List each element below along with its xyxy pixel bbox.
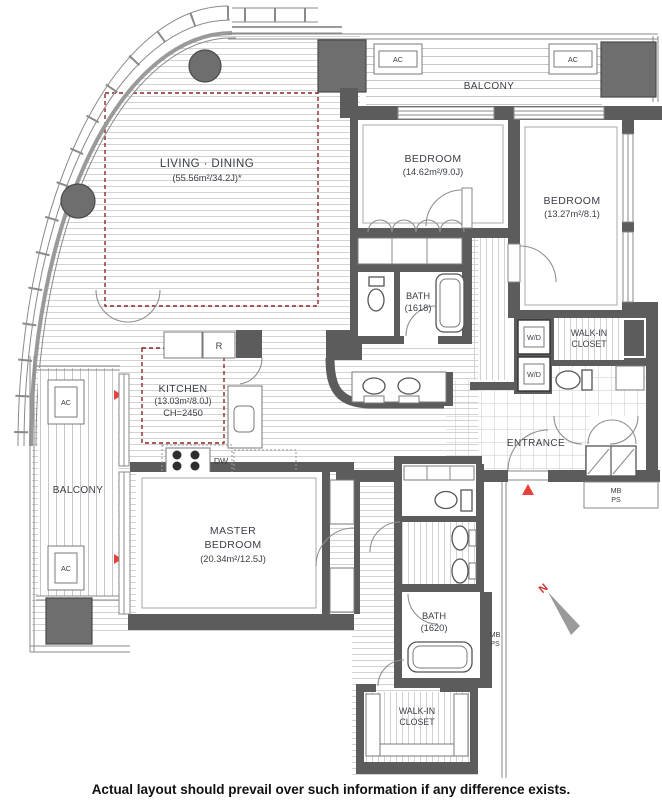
bedroom-a-closet [358, 238, 462, 264]
round-column-left [61, 184, 95, 218]
kitchen-label: KITCHEN [159, 383, 208, 395]
stove [166, 448, 210, 474]
ps-label-b: PS [490, 639, 500, 648]
mb-label-a: MB [611, 486, 622, 495]
walk-in-closet-b-line1: WALK-IN [399, 706, 435, 716]
living-dining-area: (55.56m²/34.2J)* [172, 173, 242, 183]
kitchen-ceiling-height: CH=2450 [163, 408, 203, 418]
walk-in-closet-a-line1: WALK-IN [571, 328, 607, 338]
linen-cabinet [404, 466, 474, 480]
bath-b-label: BATH [422, 611, 446, 621]
bedroom-a-label: BEDROOM [404, 153, 461, 165]
kitchen-cabinet [164, 332, 202, 358]
washer-dryer-label-bottom: W/D [527, 370, 541, 379]
kitchen-area: (13.03m²/8.0J) [154, 396, 211, 406]
caption: Actual layout should prevail over such i… [92, 782, 571, 797]
refrigerator-label: R [216, 341, 223, 351]
hall-floor-bedrooms [472, 232, 508, 380]
toilet-c-tank [461, 490, 472, 511]
walk-in-closet-a-line2: CLOSET [571, 339, 607, 349]
vanity-main [352, 372, 446, 403]
floorplan-page: N LIVING · DINING (55.56m²/34.2J)* BEDRO… [0, 0, 662, 812]
balcony-left-label: BALCONY [53, 485, 104, 496]
floorplan-svg: N LIVING · DINING (55.56m²/34.2J)* BEDRO… [0, 0, 662, 812]
ac-label-top-right: AC [568, 55, 578, 64]
master-closet-bottom [330, 568, 354, 612]
vanity-sink-left [363, 378, 385, 394]
master-closet-top [330, 480, 354, 524]
bath-a-label: BATH [406, 291, 430, 301]
balcony-top-label: BALCONY [464, 81, 515, 92]
entry-marker [522, 484, 534, 495]
master-bedroom-label-2: BEDROOM [204, 539, 261, 551]
column-balcony-left [318, 40, 366, 92]
ac-label-top-left: AC [393, 55, 403, 64]
toilet-a-tank [369, 277, 384, 286]
toilet-b [556, 371, 580, 389]
bedroom-b-area: (13.27m²/8.1) [544, 209, 600, 219]
master-bedroom-label-1: MASTER [210, 525, 256, 537]
bath-b-size: (1620) [421, 623, 448, 633]
ps-label-a: PS [611, 495, 621, 504]
master-bedroom-area: (20.34m²/12.5J) [200, 554, 266, 564]
vanity-sink-right [398, 378, 420, 394]
master-sink-bottom [452, 559, 468, 583]
column-bottom-left [46, 598, 92, 644]
north-label: N [537, 582, 551, 596]
entrance-label: ENTRANCE [507, 438, 565, 449]
toilet-b-tank [582, 370, 592, 390]
bath-a-size: (1618) [405, 303, 432, 313]
ac-label-left-top: AC [61, 398, 71, 407]
bedroom-b-label: BEDROOM [543, 195, 600, 207]
north-arrow: N [537, 582, 580, 635]
dishwasher-label: DW [214, 456, 229, 466]
toilet-a [368, 289, 384, 311]
toilet-c [435, 492, 457, 509]
walk-in-closet-b-line2: CLOSET [399, 717, 435, 727]
mb-label-b: MB [490, 630, 501, 639]
bedroom-b-window [514, 107, 604, 119]
ac-label-left-bottom: AC [61, 564, 71, 573]
bedroom-a-window [398, 107, 494, 119]
toilet-b-cabinet [616, 366, 644, 390]
kitchen-sink [234, 406, 254, 432]
master-sink-top [452, 526, 468, 550]
living-dining-label: LIVING · DINING [160, 158, 254, 170]
bedroom-a-area: (14.62m²/9.0J) [403, 167, 463, 177]
north-arrow-needle [548, 592, 580, 635]
round-column-top [189, 50, 221, 82]
washer-dryer-label-top: W/D [527, 333, 541, 342]
column-balcony-right [601, 42, 656, 97]
